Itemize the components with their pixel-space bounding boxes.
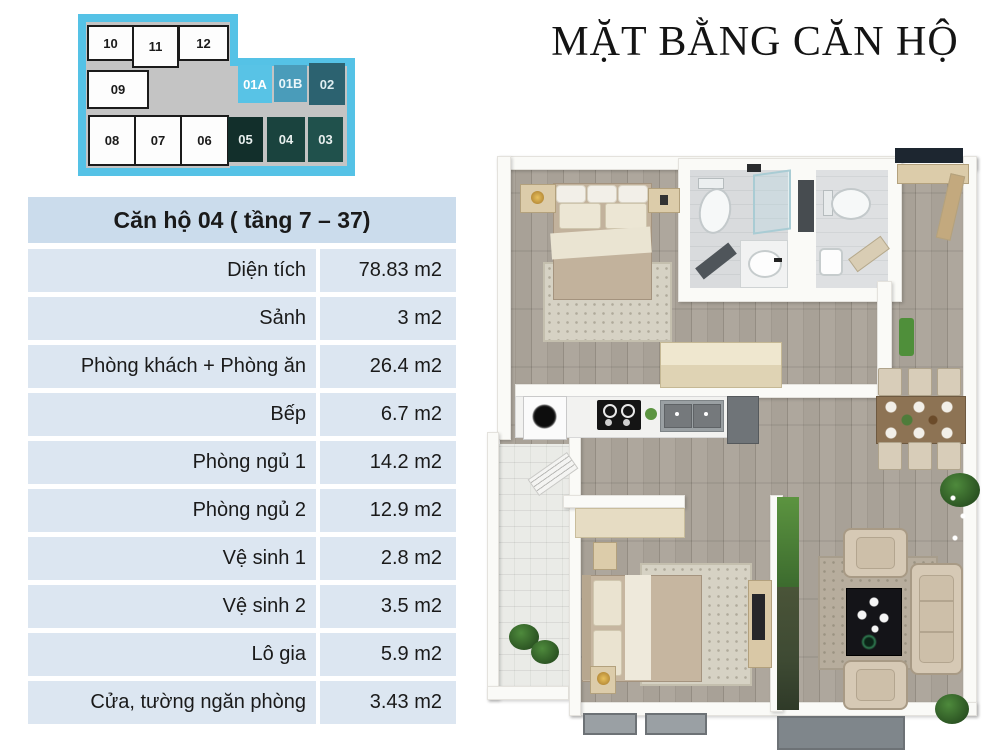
table-row: Phòng ngủ 1 14.2 m2	[28, 441, 456, 484]
row-label: Phòng ngủ 1	[28, 441, 316, 484]
armchair-seat	[856, 537, 895, 569]
outside-area	[485, 700, 570, 750]
sink1-basin-icon	[748, 250, 782, 278]
table-row: Vệ sinh 1 2.8 m2	[28, 537, 456, 580]
row-value: 2.8 m2	[320, 537, 456, 580]
toilet1-cistern	[698, 178, 724, 189]
sink2-icon	[819, 248, 843, 276]
wall-balcony-outer	[487, 432, 499, 700]
kitchen-island-bar	[660, 342, 782, 388]
floor-plan	[485, 148, 1000, 750]
living-plant-bottom	[935, 694, 969, 724]
page-title: MẶT BẰNG CĂN HỘ	[530, 18, 980, 66]
row-label: Phòng khách + Phòng ăn	[28, 345, 316, 388]
tray-icon	[597, 672, 610, 685]
unit-cell-02: 02	[309, 63, 345, 105]
dining-table	[876, 396, 966, 444]
row-value: 26.4 m2	[320, 345, 456, 388]
table-row: Lô gia 5.9 m2	[28, 633, 456, 676]
wall-left	[497, 156, 511, 440]
bedroom2-wall-top	[563, 495, 685, 508]
armchair-bottom	[843, 660, 908, 710]
armchair-seat	[856, 669, 895, 701]
unit-cell-05: 05	[228, 117, 263, 162]
bed2-pillow	[593, 580, 622, 626]
bed1-pillow	[605, 203, 647, 229]
table-row: Diện tích 78.83 m2	[28, 249, 456, 292]
unit-cell-03: 03	[308, 117, 343, 162]
unit-cell-07: 07	[134, 115, 182, 166]
row-value: 14.2 m2	[320, 441, 456, 484]
dining-chair	[878, 442, 902, 470]
row-label: Phòng ngủ 2	[28, 489, 316, 532]
unit-location-map: 10 11 12 09 01A 01B 02 08 07 06 05 04 03	[78, 14, 356, 178]
row-label: Diện tích	[28, 249, 316, 292]
row-value: 3.43 m2	[320, 681, 456, 724]
balcony-mat	[645, 713, 707, 735]
bedroom2-desk	[575, 508, 685, 538]
dining-chair	[937, 442, 961, 470]
bathroom-wall-niche	[798, 180, 814, 232]
balcony-plant	[531, 640, 559, 664]
bed2-blanket	[625, 575, 651, 680]
row-value: 78.83 m2	[320, 249, 456, 292]
sink-basin-icon	[693, 404, 721, 428]
sofa-cushions	[919, 575, 954, 663]
row-label: Cửa, tường ngăn phòng	[28, 681, 316, 724]
entry-door	[895, 148, 963, 163]
row-value: 3 m2	[320, 297, 456, 340]
bed1-cushion	[587, 185, 617, 203]
unit-cell-01B: 01B	[274, 65, 307, 102]
burner-icon	[621, 404, 635, 418]
unit-cell-09: 09	[87, 70, 149, 109]
sink1-tap-icon	[774, 258, 782, 262]
row-value: 12.9 m2	[320, 489, 456, 532]
dining-chair	[937, 368, 961, 396]
hall-plant	[899, 318, 914, 356]
unit-cell-06: 06	[180, 115, 229, 166]
row-label: Sảnh	[28, 297, 316, 340]
vertical-garden-bottom	[777, 587, 799, 710]
bed1-cushion	[556, 185, 586, 203]
apartment-info-table: Căn hộ 04 ( tầng 7 – 37) Diện tích 78.83…	[28, 197, 456, 729]
bed1-pillow	[559, 203, 601, 229]
unit-cell-04: 04	[267, 117, 305, 162]
tv-icon	[752, 594, 765, 640]
bedroom2-nightstand-top	[593, 542, 617, 570]
sofa	[910, 563, 963, 675]
unit-cell-08: 08	[88, 115, 136, 166]
row-value: 3.5 m2	[320, 585, 456, 628]
toilet2-icon	[831, 188, 871, 220]
washer-door-icon	[532, 404, 557, 429]
unit-cell-11: 11	[132, 25, 179, 68]
page: MẶT BẰNG CĂN HỘ 10 11 12 09 01A 01B 02 0…	[0, 0, 1000, 750]
tap-icon	[675, 412, 679, 416]
shower-glass-icon	[753, 169, 791, 234]
table-header: Căn hộ 04 ( tầng 7 – 37)	[28, 197, 456, 243]
entry-mat	[777, 716, 905, 750]
kitchen-plant-icon	[645, 408, 657, 420]
wall-balcony-inner	[569, 432, 581, 716]
shower-head-icon	[747, 164, 761, 172]
table-row: Sảnh 3 m2	[28, 297, 456, 340]
counter-corner	[727, 396, 759, 444]
row-value: 6.7 m2	[320, 393, 456, 436]
table-row: Phòng ngủ 2 12.9 m2	[28, 489, 456, 532]
row-label: Bếp	[28, 393, 316, 436]
row-label: Vệ sinh 2	[28, 585, 316, 628]
stove-knob-icon	[623, 419, 630, 426]
balcony-mat	[583, 713, 637, 735]
table-row: Vệ sinh 2 3.5 m2	[28, 585, 456, 628]
table-row: Cửa, tường ngăn phòng 3.43 m2	[28, 681, 456, 724]
row-label: Lô gia	[28, 633, 316, 676]
bed1-cushion	[618, 185, 648, 203]
dining-chair	[908, 368, 932, 396]
table-row: Phòng khách + Phòng ăn 26.4 m2	[28, 345, 456, 388]
unit-cell-12: 12	[178, 25, 229, 61]
row-value: 5.9 m2	[320, 633, 456, 676]
row-label: Vệ sinh 1	[28, 537, 316, 580]
coffee-table	[846, 588, 902, 656]
tap-icon	[704, 412, 708, 416]
sink-basin-icon	[664, 404, 692, 428]
unit-cell-01A: 01A	[238, 65, 272, 103]
table-row: Bếp 6.7 m2	[28, 393, 456, 436]
armchair-top	[843, 528, 908, 578]
vertical-garden-top	[777, 497, 799, 587]
dining-chair	[878, 368, 902, 396]
lamp-icon	[531, 191, 544, 204]
dining-chair	[908, 442, 932, 470]
unit-cell-10: 10	[87, 25, 134, 61]
bed2-headboard	[582, 575, 591, 680]
living-planter	[945, 486, 973, 558]
nightstand-item-icon	[660, 195, 668, 205]
burner-icon	[603, 404, 617, 418]
wall-balcony-bottom	[487, 686, 569, 700]
stove-knob-icon	[605, 419, 612, 426]
